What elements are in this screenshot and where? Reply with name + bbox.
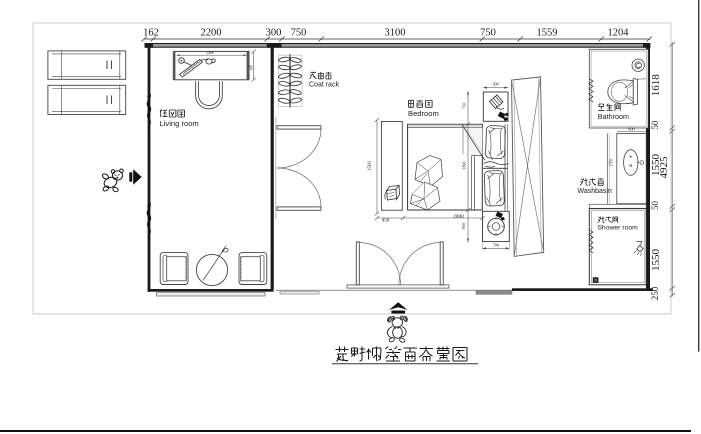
svg-text:1800: 1800 [462, 162, 467, 170]
svg-text:600: 600 [461, 223, 466, 229]
svg-text:300: 300 [266, 28, 282, 39]
svg-text:4925: 4925 [658, 156, 670, 179]
svg-text:Bedroom: Bedroom [408, 109, 439, 118]
svg-text:Washbasin: Washbasin [578, 188, 612, 195]
svg-text:750: 750 [480, 28, 496, 39]
svg-text:300: 300 [492, 82, 498, 87]
svg-text:2200: 2200 [201, 28, 222, 39]
svg-text:1550: 1550 [650, 249, 662, 272]
svg-text:Living room: Living room [160, 119, 199, 128]
svg-text:50: 50 [650, 201, 660, 211]
svg-text:162: 162 [143, 28, 159, 39]
svg-text:1550: 1550 [610, 159, 614, 166]
svg-text:Bathroom: Bathroom [598, 112, 629, 121]
svg-text:750: 750 [291, 28, 307, 39]
svg-text:50: 50 [650, 120, 660, 130]
svg-text:1500: 1500 [368, 161, 373, 172]
svg-text:Coat rack: Coat rack [309, 82, 339, 89]
svg-text:1204: 1204 [608, 28, 630, 39]
svg-text:600: 600 [249, 65, 253, 71]
svg-text:450: 450 [382, 219, 390, 224]
svg-text:1618: 1618 [650, 74, 662, 97]
svg-text:3100: 3100 [385, 28, 406, 39]
svg-text:700: 700 [493, 243, 500, 248]
svg-text:2000: 2000 [453, 214, 464, 220]
svg-text:1400: 1400 [206, 50, 214, 55]
svg-text:750: 750 [461, 103, 466, 109]
svg-text:1559: 1559 [537, 28, 558, 39]
svg-text:Shower room: Shower room [597, 225, 638, 232]
svg-text:600: 600 [628, 126, 634, 131]
